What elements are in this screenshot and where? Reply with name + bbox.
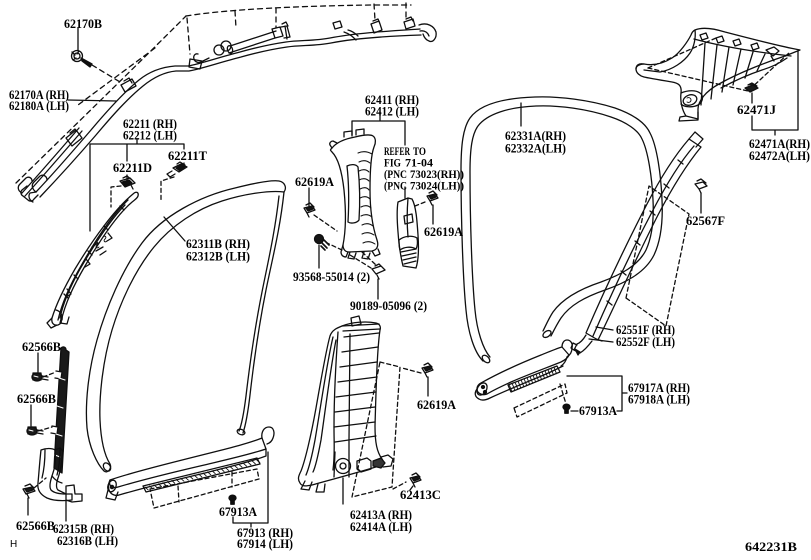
svg-text:H: H <box>10 539 17 550</box>
svg-text:62412 (LH): 62412 (LH) <box>365 104 419 119</box>
svg-text:73023(RH)): 73023(RH)) <box>410 169 464 181</box>
svg-text:67913A: 67913A <box>579 403 618 418</box>
svg-text:642231B: 642231B <box>745 539 797 554</box>
svg-text:62413C: 62413C <box>400 487 441 502</box>
svg-text:62619A: 62619A <box>295 174 335 189</box>
svg-text:90189-05096 (2): 90189-05096 (2) <box>350 298 427 313</box>
svg-text:67918A (LH): 67918A (LH) <box>628 392 690 407</box>
svg-text:73024(LH)): 73024(LH)) <box>410 181 464 193</box>
svg-text:62566B: 62566B <box>17 391 56 406</box>
svg-text:71-04: 71-04 <box>405 158 433 170</box>
svg-text:67913A: 67913A <box>219 504 258 519</box>
svg-text:62316B (LH): 62316B (LH) <box>57 533 118 548</box>
svg-text:62552F (LH): 62552F (LH) <box>616 334 675 349</box>
svg-text:62312B (LH): 62312B (LH) <box>186 249 250 264</box>
svg-text:FIG: FIG <box>384 158 401 170</box>
svg-text:62180A (LH): 62180A (LH) <box>9 98 69 113</box>
svg-text:62566B: 62566B <box>16 518 55 533</box>
svg-text:62212 (LH): 62212 (LH) <box>123 128 177 143</box>
svg-text:62170B: 62170B <box>64 16 102 31</box>
svg-text:62619A: 62619A <box>417 397 457 412</box>
svg-text:62211D: 62211D <box>113 160 152 175</box>
svg-text:62566B: 62566B <box>22 339 61 354</box>
svg-text:62211T: 62211T <box>168 148 207 163</box>
svg-text:TO: TO <box>413 146 426 158</box>
svg-text:62619A: 62619A <box>424 224 464 239</box>
svg-text:62472A(LH): 62472A(LH) <box>749 148 810 163</box>
svg-text:(PNC: (PNC <box>384 169 407 181</box>
svg-text:62414A (LH): 62414A (LH) <box>350 519 412 534</box>
svg-text:62332A(LH): 62332A(LH) <box>505 141 566 156</box>
svg-text:62471J: 62471J <box>737 102 777 117</box>
svg-text:67914 (LH): 67914 (LH) <box>237 536 293 551</box>
svg-text:62567F: 62567F <box>686 213 725 228</box>
svg-text:REFER: REFER <box>384 146 410 158</box>
svg-text:93568-55014 (2): 93568-55014 (2) <box>293 269 370 284</box>
svg-text:(PNC: (PNC <box>384 181 407 193</box>
